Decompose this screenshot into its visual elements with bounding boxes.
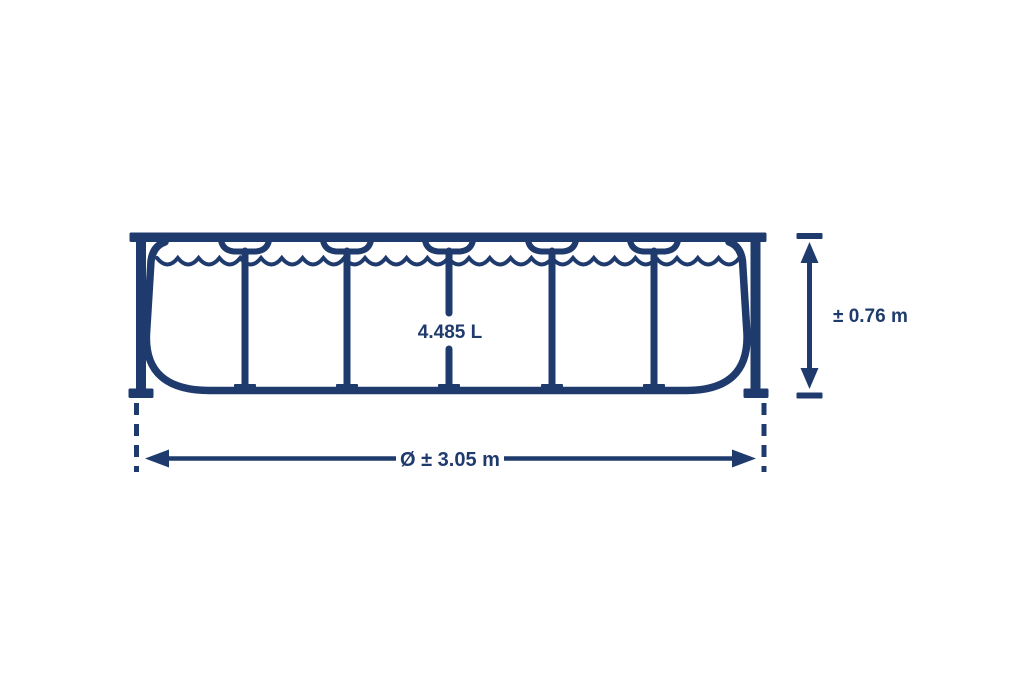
vertical-double-arrow-icon (801, 242, 819, 389)
left-leg-foot (129, 389, 154, 399)
capacity-label: 4.485 L (418, 322, 483, 343)
height-dimension-label: ± 0.76 m (833, 306, 908, 327)
horizontal-arrow-right-icon (504, 450, 756, 468)
top-rail (130, 233, 767, 243)
height-dimension: ± 0.76 m (797, 233, 908, 399)
pool-dimension-diagram-canvas: 4.485 L ± 0.76 m Ø ± 3.05 (0, 0, 1035, 700)
leg-foot (234, 384, 256, 392)
leg-foot (438, 384, 460, 392)
leg-foot (541, 384, 563, 392)
leg-foot (336, 384, 358, 392)
right-leg (751, 240, 761, 391)
height-dimension-cap-top (797, 233, 823, 239)
pool-dimension-diagram: 4.485 L ± 0.76 m Ø ± 3.05 (0, 0, 1035, 700)
leg-foot (643, 384, 665, 392)
right-leg-foot (744, 389, 769, 399)
diameter-dimension-label: Ø ± 3.05 m (400, 449, 500, 471)
height-dimension-cap-bottom (797, 393, 823, 399)
diameter-dimension: Ø ± 3.05 m (137, 403, 765, 472)
horizontal-arrow-left-icon (145, 450, 396, 468)
